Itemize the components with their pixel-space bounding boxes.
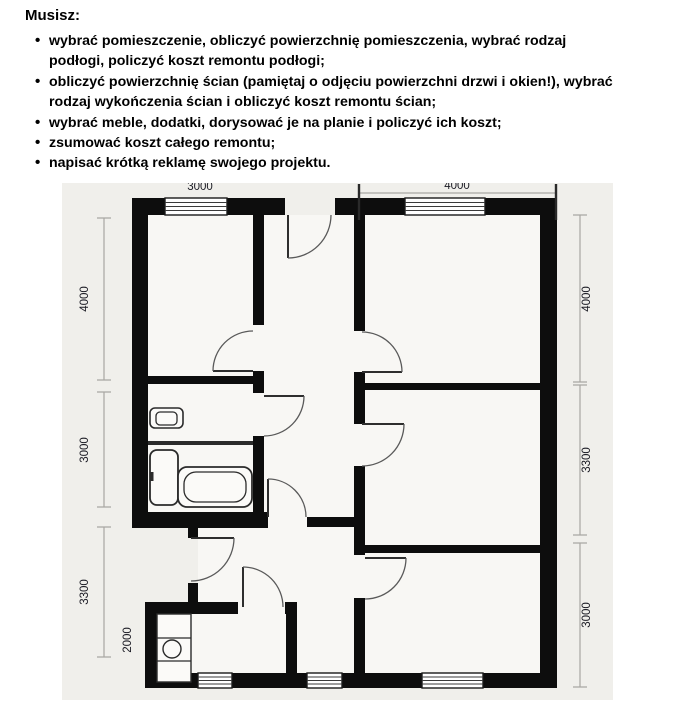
floor-plan: 3000 4000 4000 3000 3300 2000 4000 3300 …	[62, 183, 613, 700]
instruction-item-5: napisać krótką reklamę swojego projektu.	[49, 153, 673, 173]
task-instructions: Musisz: wybrać pomieszczenie, obliczyć p…	[25, 6, 673, 174]
dim-right-3000: 3000	[581, 602, 593, 628]
window-top-right	[405, 198, 485, 215]
window-top-left	[165, 198, 227, 215]
left-wall	[132, 198, 148, 528]
bathtub	[178, 467, 252, 507]
dim-right-4000: 4000	[581, 286, 593, 312]
dim-left-3300: 3300	[79, 579, 91, 605]
instructions-title: Musisz:	[25, 6, 673, 25]
washing-machine	[150, 450, 178, 505]
dim-left-2000: 2000	[122, 627, 134, 653]
kitchen-left-wall	[145, 602, 158, 688]
instructions-list: wybrać pomieszczenie, obliczyć powierzch…	[25, 31, 673, 174]
floor-plan-drawing: 3000 4000 4000 3000 3300 2000 4000 3300 …	[62, 183, 613, 700]
dim-top-4000: 4000	[444, 183, 470, 192]
kitchen-right-wall	[286, 602, 297, 673]
instruction-item-1: wybrać pomieszczenie, obliczyć powierzch…	[49, 31, 673, 72]
bathroom-bottom-wall	[132, 512, 268, 528]
kitchen-unit	[157, 614, 191, 682]
instruction-item-4: zsumować koszt całego remontu;	[49, 133, 673, 153]
dim-right-3300: 3300	[581, 447, 593, 473]
kitchen-fixtures	[157, 614, 191, 682]
dim-left-3000: 3000	[79, 437, 91, 463]
instruction-item-2: obliczyć powierzchnię ścian (pamiętaj o …	[49, 72, 673, 113]
window-bottom-kitchen	[198, 673, 232, 688]
dim-left-4000: 4000	[79, 286, 91, 312]
instruction-item-3: wybrać meble, dodatki, dorysować je na p…	[49, 113, 673, 133]
window-bottom-hall	[307, 673, 342, 688]
window-bottom-right	[422, 673, 483, 688]
bathroom-counter	[148, 441, 253, 445]
worksheet-page: Musisz: wybrać pomieszczenie, obliczyć p…	[0, 0, 683, 700]
right-wall	[540, 198, 557, 688]
toilet	[150, 408, 183, 428]
kitchen-top-wall	[145, 602, 238, 614]
dim-top-3000: 3000	[187, 183, 213, 193]
